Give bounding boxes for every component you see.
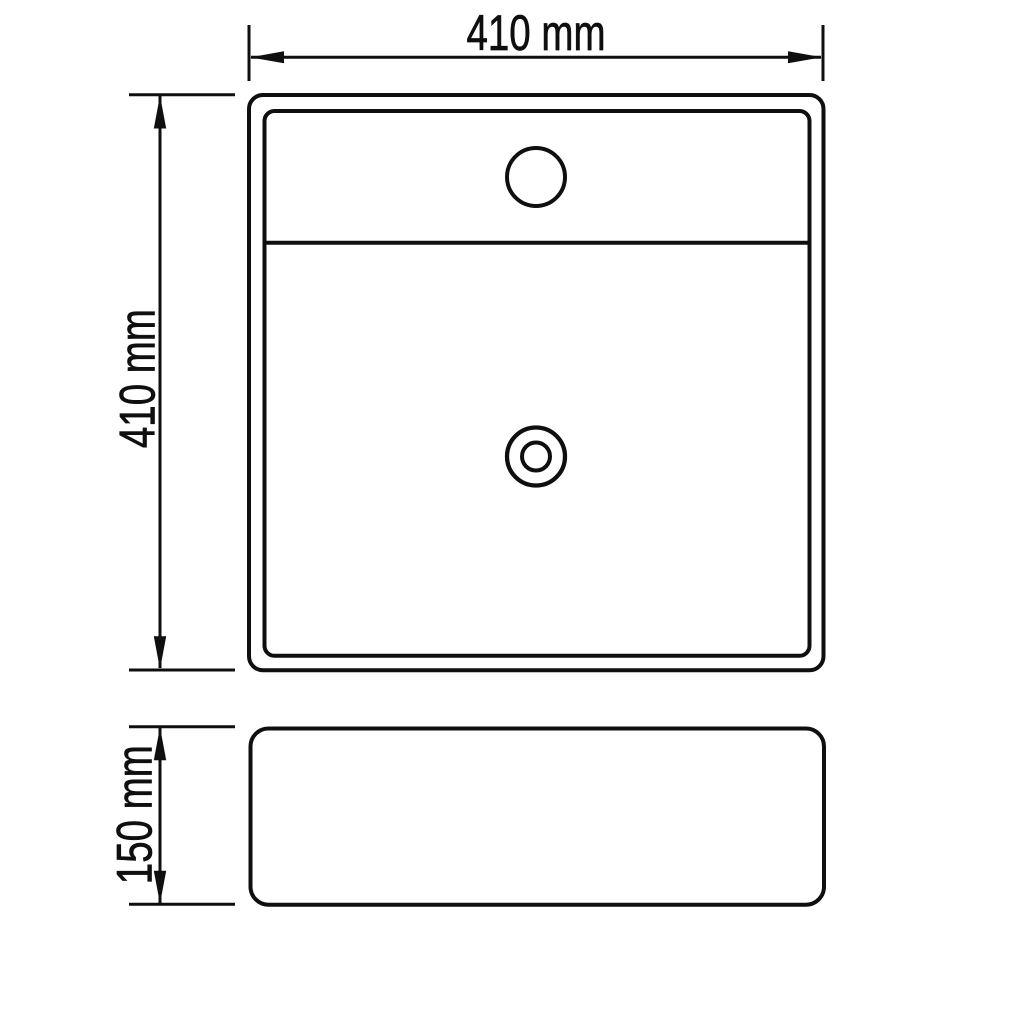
svg-text:150 mm: 150 mm xyxy=(107,745,163,884)
svg-text:410 mm: 410 mm xyxy=(110,309,166,448)
svg-text:410 mm: 410 mm xyxy=(467,5,606,61)
